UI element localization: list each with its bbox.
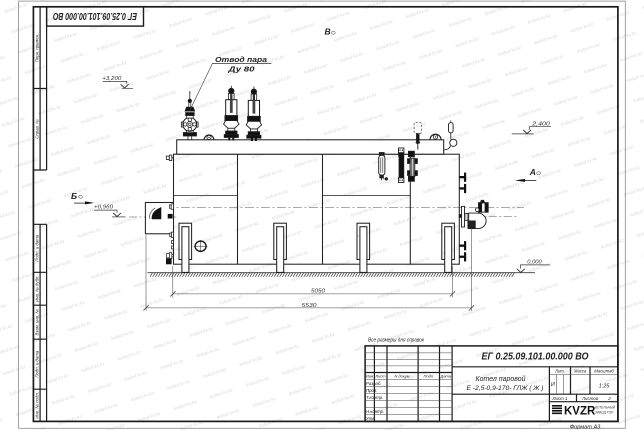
svg-text:Подп. и дата: Подп. и дата bbox=[35, 234, 40, 262]
svg-text:Ду 80: Ду 80 bbox=[227, 67, 255, 74]
svg-text:Е -2,5-0,9-170- ГЛЖ ( Ж ): Е -2,5-0,9-170- ГЛЖ ( Ж ) bbox=[467, 385, 544, 392]
svg-text:Разраб.: Разраб. bbox=[366, 381, 382, 386]
svg-text:Инв. № подл.: Инв. № подл. bbox=[35, 392, 40, 419]
svg-text:+3,200: +3,200 bbox=[102, 76, 122, 82]
svg-text:Формат А3: Формат А3 bbox=[570, 424, 601, 430]
svg-text:Лит.: Лит. bbox=[554, 369, 565, 374]
svg-text:ЕГ 0.25.09.101.00.000 ВО: ЕГ 0.25.09.101.00.000 ВО bbox=[482, 351, 589, 362]
svg-text:Котел паровой: Котел паровой bbox=[476, 375, 526, 383]
svg-text:И: И bbox=[551, 382, 555, 388]
svg-text:0,000: 0,000 bbox=[527, 260, 542, 266]
svg-text:KVZR: KVZR bbox=[564, 406, 596, 418]
svg-text:Перв. примен.: Перв. примен. bbox=[35, 34, 40, 63]
svg-text:Лист: Лист bbox=[374, 374, 386, 379]
svg-text:Подп.: Подп. bbox=[423, 374, 434, 379]
svg-text:Масштаб: Масштаб bbox=[594, 369, 614, 374]
svg-text:Б: Б bbox=[71, 191, 77, 201]
svg-text:Дата: Дата bbox=[440, 374, 452, 379]
svg-text:ЗАВОД РЭП: ЗАВОД РЭП bbox=[595, 410, 614, 414]
svg-text:5050: 5050 bbox=[311, 289, 326, 295]
svg-text:1:25: 1:25 bbox=[599, 383, 611, 389]
svg-text:Все размеры для справок: Все размеры для справок bbox=[368, 338, 424, 344]
svg-text:Инв. № дубл.: Инв. № дубл. bbox=[35, 275, 40, 301]
svg-text:Лист 1: Лист 1 bbox=[552, 396, 569, 401]
svg-text:Взам. инв. №: Взам. инв. № bbox=[35, 309, 40, 336]
svg-text:2: 2 bbox=[607, 396, 611, 401]
svg-text:Масса: Масса bbox=[574, 369, 587, 374]
svg-text:Пров.: Пров. bbox=[366, 388, 377, 393]
svg-text:Листов: Листов bbox=[581, 396, 599, 401]
svg-text:Справ. №: Справ. № bbox=[35, 119, 40, 139]
svg-text:Изм: Изм bbox=[366, 374, 374, 379]
svg-text:2,400: 2,400 bbox=[531, 121, 551, 127]
svg-text:В: В bbox=[325, 27, 331, 37]
svg-text:Т.контр.: Т.контр. bbox=[366, 395, 383, 400]
svg-text:+0,960: +0,960 bbox=[94, 205, 114, 211]
svg-text:А: А bbox=[529, 167, 536, 177]
svg-text:КОТЕЛЬНЫЙ: КОТЕЛЬНЫЙ bbox=[595, 405, 616, 409]
svg-text:Н.контр.: Н.контр. bbox=[366, 409, 384, 414]
svg-text:Отвод пара: Отвод пара bbox=[215, 56, 267, 64]
svg-text:Утв.: Утв. bbox=[366, 416, 376, 421]
svg-text:ЕГ 0.25.09.101.00.000 ВО: ЕГ 0.25.09.101.00.000 ВО bbox=[53, 10, 137, 21]
svg-text:5530: 5530 bbox=[302, 303, 318, 309]
svg-text:Подп. и дата: Подп. и дата bbox=[35, 350, 40, 378]
svg-text:N докум.: N докум. bbox=[394, 374, 410, 379]
